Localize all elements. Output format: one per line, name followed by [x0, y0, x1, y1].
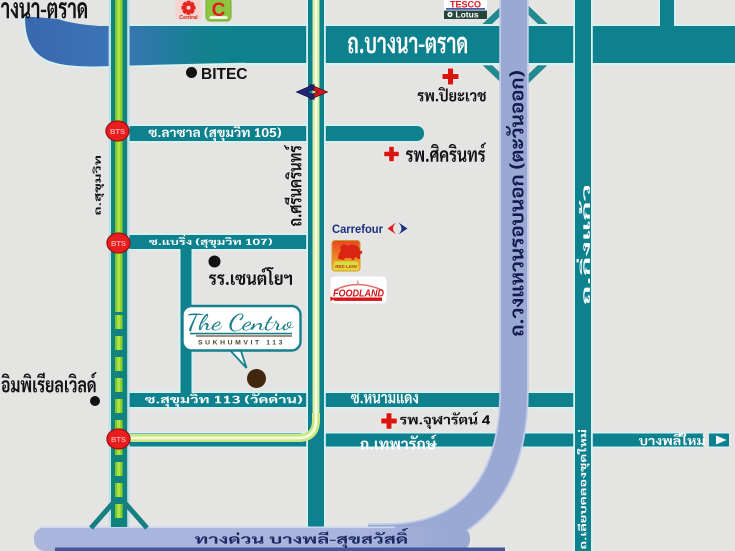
svg-text:BTS: BTS — [111, 435, 126, 444]
svg-text:Lotus: Lotus — [455, 10, 478, 20]
svg-text:BITEC: BITEC — [201, 66, 248, 83]
svg-text:Carrefour: Carrefour — [332, 224, 384, 236]
svg-text:SUKHUMVIT 113: SUKHUMVIT 113 — [198, 340, 285, 347]
svg-text:BTS: BTS — [110, 127, 125, 136]
svg-text:Central: Central — [179, 15, 198, 21]
svg-text:RED LION: RED LION — [335, 264, 357, 269]
svg-text:BTS: BTS — [111, 239, 126, 248]
